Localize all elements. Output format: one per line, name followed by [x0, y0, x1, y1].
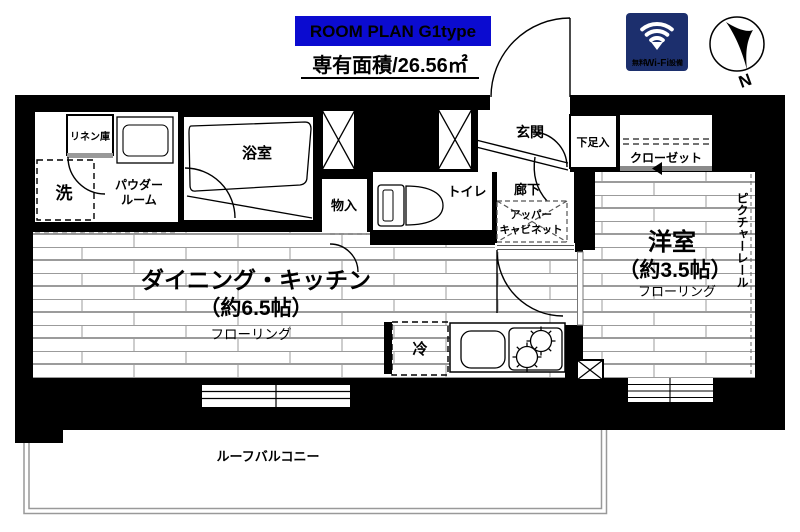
fridge-label: 冷 — [412, 340, 427, 358]
vanity-sink — [117, 117, 173, 163]
western-room-flooring-label: フローリング — [638, 284, 716, 299]
area-text: 専有面積/26.56㎡ — [312, 53, 468, 77]
bathroom-label: 浴室 — [242, 144, 272, 162]
floor-plan-svg: ROOM PLAN G1type 専有面積/26.56㎡ 無料 Wi-Fi 設備… — [0, 0, 800, 532]
toilet-icon — [378, 185, 443, 226]
closet-room — [620, 115, 712, 175]
powder-room-label-1: パウダー — [115, 177, 163, 192]
upper-cabinet-label-2: キャビネット — [500, 223, 563, 236]
entrance-label: 玄関 — [516, 124, 544, 140]
corridor-threshold — [495, 243, 575, 252]
floor-plan-page: ROOM PLAN G1type 専有面積/26.56㎡ 無料 Wi-Fi 設備… — [0, 0, 800, 532]
burner-icon — [513, 343, 542, 372]
picture-rail-label: ピクチャーレール — [735, 192, 749, 288]
closet-door — [620, 166, 712, 171]
western-room-window — [628, 378, 713, 402]
compass-circle — [710, 17, 764, 71]
sliding-door-dk-western — [578, 252, 584, 325]
storage-label: 物入 — [331, 198, 357, 213]
toilet-label: トイレ — [447, 184, 486, 199]
wifi-text-brand: Wi-Fi — [645, 58, 670, 69]
washer-label: 洗 — [56, 183, 73, 203]
compass: N — [710, 17, 764, 92]
plan-title: ROOM PLAN G1type — [310, 22, 476, 41]
front-door-swing — [491, 18, 570, 97]
kitchen-sink — [461, 331, 505, 368]
kitchen-wall-stub — [384, 322, 392, 374]
upper-cabinet-label-1: アッパー — [510, 209, 552, 221]
dk-name-label: ダイニング・キッチン — [141, 267, 371, 293]
western-room-name-label: 洋室 — [648, 228, 696, 256]
dk-size-label: （約6.5帖） — [199, 296, 312, 320]
western-room-size-label: （約3.5帖） — [618, 258, 731, 282]
dk-window — [202, 385, 350, 407]
area-underline — [301, 77, 479, 79]
wifi-badge: 無料 Wi-Fi 設備 — [626, 13, 688, 71]
dk-flooring-label: フローリング — [211, 327, 292, 342]
pipe-shaft-2 — [438, 109, 472, 170]
powder-room-label-2: ルーム — [121, 193, 157, 207]
pipe-shaft-small — [577, 360, 603, 380]
corridor-label: 廊下 — [514, 182, 540, 197]
shoe-box-label: 下足入 — [577, 136, 610, 149]
linen-label: リネン庫 — [70, 130, 110, 143]
wifi-text-suffix: 設備 — [669, 58, 683, 67]
north-label: N — [736, 70, 754, 92]
wall-left-step — [15, 425, 63, 443]
balcony-outline — [24, 430, 607, 514]
roof-balcony-label: ルーフバルコニー — [217, 449, 320, 464]
closet-label: クローゼット — [630, 150, 702, 165]
pipe-shaft-1 — [322, 110, 355, 170]
header: ROOM PLAN G1type 専有面積/26.56㎡ — [295, 16, 491, 79]
